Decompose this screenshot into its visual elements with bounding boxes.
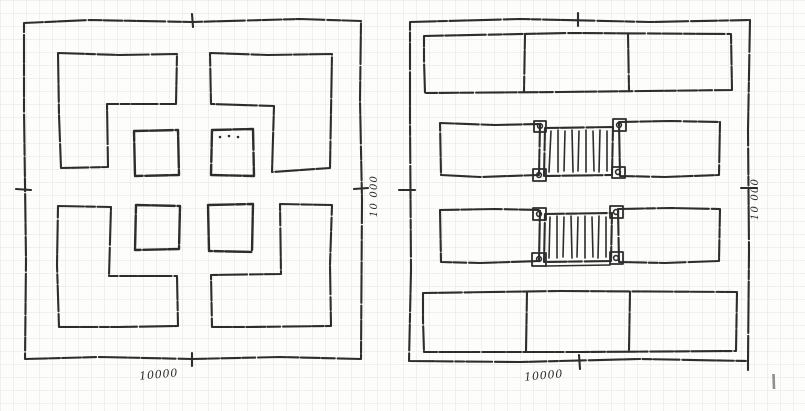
scanned-sketch-page: 10000 10 000 — [0, 0, 805, 411]
stair-lower — [532, 206, 623, 266]
right-plan: 10000 10 000 — [399, 13, 761, 384]
height-dimension-label: 10 000 — [369, 175, 380, 217]
l-shaped-wall — [211, 204, 332, 327]
bar-right — [619, 121, 720, 177]
bar-left — [440, 209, 540, 263]
dimension-ticks — [399, 13, 757, 370]
outer-wall — [409, 19, 750, 362]
bar-outline — [423, 291, 737, 352]
courtyard-square — [208, 204, 253, 252]
bar-bottom — [423, 291, 737, 352]
bar-row3 — [440, 208, 720, 263]
width-dimension-label: 10000 — [524, 367, 564, 383]
bar-top — [424, 33, 732, 93]
courtyard-square — [134, 130, 179, 176]
block-top-right — [210, 53, 332, 176]
l-shaped-wall — [58, 53, 177, 168]
stair-upper — [533, 119, 626, 181]
bar-right — [618, 208, 720, 263]
block-top-left — [58, 53, 179, 176]
bar-row2 — [440, 121, 720, 177]
courtyard-square — [211, 129, 254, 176]
pencil-dots — [219, 135, 240, 139]
bar-outline — [424, 33, 732, 93]
height-dimension-label: 10 000 — [750, 178, 761, 220]
bar-dividers — [526, 292, 630, 351]
bar-left — [440, 123, 540, 177]
stray-scan-mark — [774, 374, 775, 389]
courtyard-square — [135, 205, 180, 250]
block-bottom-right — [208, 204, 332, 327]
left-plan: 10000 10 000 — [16, 14, 380, 383]
block-bottom-left — [57, 205, 180, 327]
outer-wall — [24, 19, 362, 359]
l-shaped-wall — [210, 53, 332, 172]
l-shaped-wall — [57, 206, 178, 327]
stair-treads-hatch — [549, 216, 606, 258]
stair-treads-hatch — [549, 130, 607, 172]
stair-base-line — [546, 265, 610, 266]
bar-dividers — [524, 34, 629, 91]
dimension-ticks — [16, 14, 368, 366]
plans-drawing: 10000 10 000 — [0, 0, 805, 411]
width-dimension-label: 10000 — [139, 366, 179, 382]
